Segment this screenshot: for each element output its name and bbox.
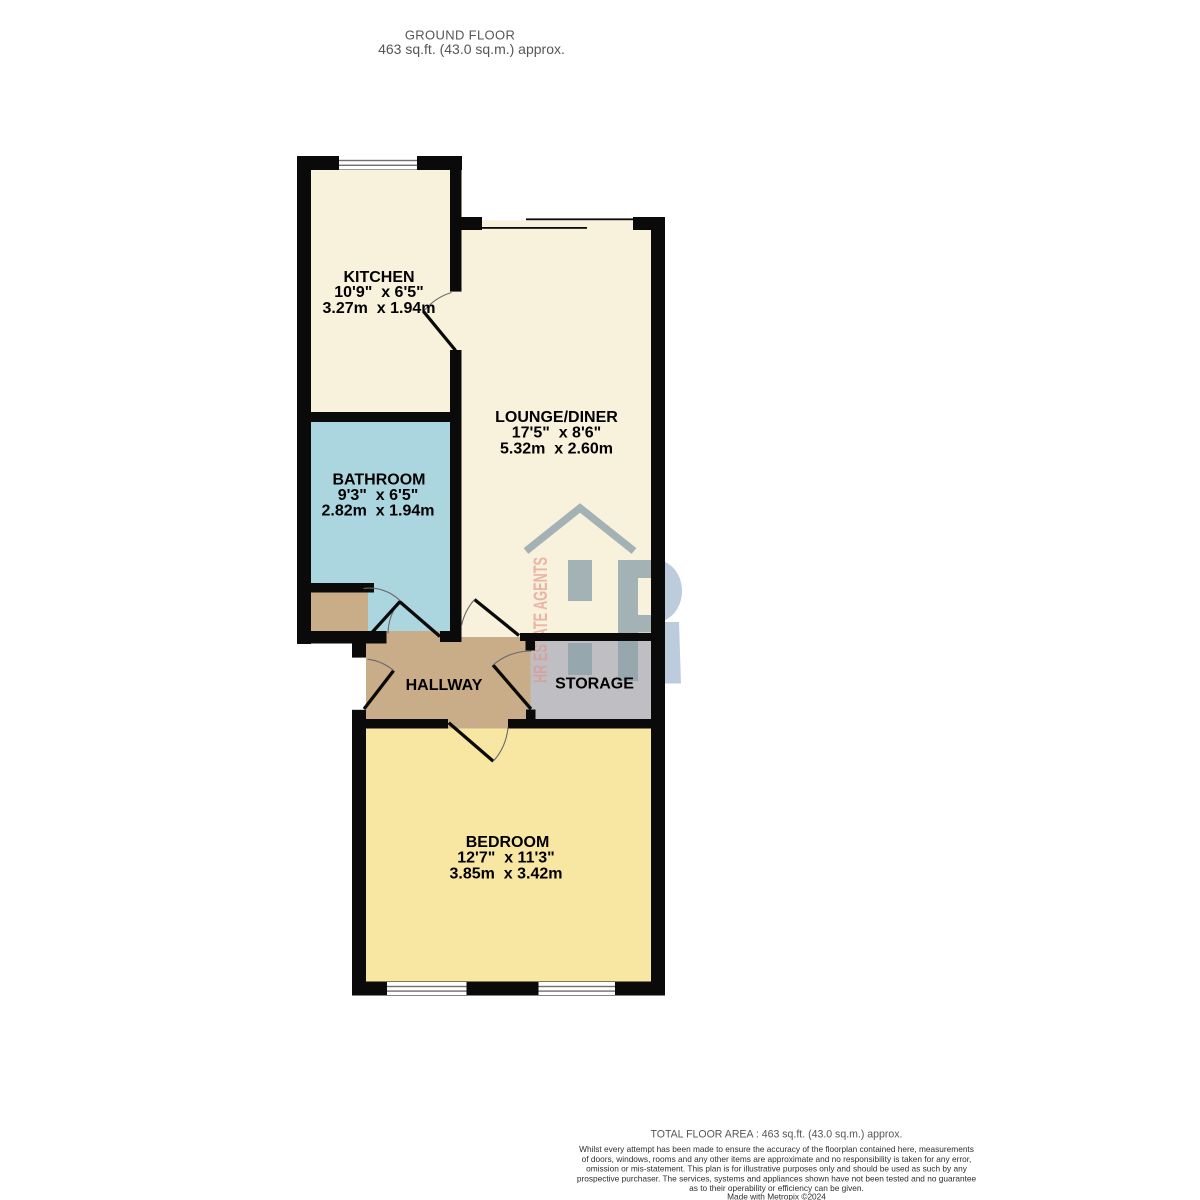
svg-text:12'7" x 11'3": 12'7" x 11'3": [457, 850, 555, 867]
svg-text:3.27m x 1.94m: 3.27m x 1.94m: [323, 300, 436, 317]
svg-text:9'3" x 6'5": 9'3" x 6'5": [338, 487, 419, 504]
svg-text:3.85m x 3.42m: 3.85m x 3.42m: [450, 866, 563, 883]
svg-text:TOTAL FLOOR AREA : 463 sq.ft.: TOTAL FLOOR AREA : 463 sq.ft. (43.0 sq.m…: [651, 1129, 903, 1141]
svg-text:BEDROOM: BEDROOM: [466, 834, 550, 851]
svg-text:Made with Metropix ©2024: Made with Metropix ©2024: [727, 1192, 826, 1200]
svg-text:5.32m x 2.60m: 5.32m x 2.60m: [500, 441, 613, 458]
svg-text:463 sq.ft. (43.0 sq.m.) approx: 463 sq.ft. (43.0 sq.m.) approx.: [378, 41, 565, 57]
svg-text:STORAGE: STORAGE: [555, 676, 634, 693]
svg-text:of doors, windows, rooms and a: of doors, windows, rooms and any other i…: [582, 1154, 972, 1164]
svg-text:Whilst every attempt has been: Whilst every attempt has been made to en…: [579, 1144, 974, 1154]
svg-text:2.82m x 1.94m: 2.82m x 1.94m: [322, 503, 435, 520]
svg-text:HALLWAY: HALLWAY: [406, 677, 483, 694]
svg-text:LOUNGE/DINER: LOUNGE/DINER: [495, 409, 618, 426]
svg-text:HR ESTATE AGENTS: HR ESTATE AGENTS: [531, 557, 552, 683]
svg-text:prospective purchaser. The ser: prospective purchaser. The services, sys…: [577, 1174, 977, 1184]
svg-text:10'9" x 6'5": 10'9" x 6'5": [334, 284, 424, 301]
svg-text:17'5" x 8'6": 17'5" x 8'6": [512, 425, 602, 442]
svg-text:omission or mis-statement. Thi: omission or mis-statement. This plan is …: [586, 1164, 968, 1174]
